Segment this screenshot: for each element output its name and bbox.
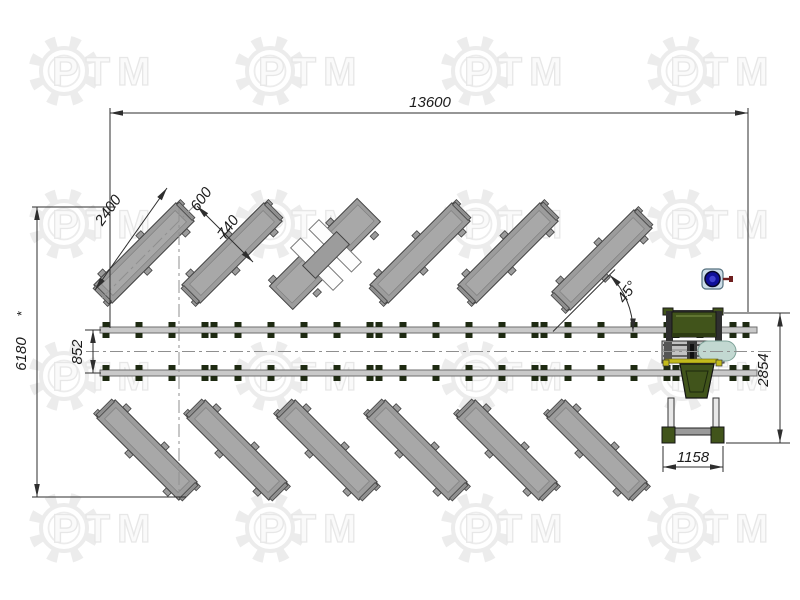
cutting-station bbox=[662, 269, 736, 443]
watermark-logo: PTM bbox=[234, 35, 363, 106]
watermark-logo: PTM bbox=[646, 492, 775, 563]
watermark-text: PTM bbox=[464, 507, 569, 551]
valve-sensor bbox=[702, 269, 733, 289]
layout-drawing-canvas: PTMPTMPTMPTMPTMPTMPTMPTMPTMPTMPTMPTMPTMP… bbox=[0, 0, 800, 600]
station-foot-right bbox=[711, 427, 724, 443]
watermark-logo: PTM bbox=[28, 492, 157, 563]
dim-overall-width: 6180 bbox=[13, 337, 30, 371]
watermark-logo: PTM bbox=[646, 188, 775, 259]
layout-drawing: PTMPTMPTMPTMPTMPTMPTMPTMPTMPTMPTMPTMPTMP… bbox=[0, 0, 800, 600]
watermark-text: PTM bbox=[52, 507, 157, 551]
station-guard-strip bbox=[665, 359, 718, 363]
dim-overall-length: 13600 bbox=[409, 94, 451, 111]
roller-conveyor bbox=[174, 195, 289, 310]
watermark-logo: PTM bbox=[234, 492, 363, 563]
diagonal-conveyors bbox=[86, 190, 659, 508]
watermark-text: PTM bbox=[670, 507, 775, 551]
dim-overall-width-note: * bbox=[14, 311, 29, 317]
watermark-text: PTM bbox=[464, 355, 569, 399]
watermark-logo: PTM bbox=[440, 35, 569, 106]
station-foot-left bbox=[662, 427, 675, 443]
watermark-text: PTM bbox=[464, 50, 569, 94]
dim-spacing-a: 600 bbox=[187, 184, 216, 215]
dim-track-gap: 852 bbox=[69, 339, 86, 365]
watermark-text: PTM bbox=[52, 50, 157, 94]
watermark-text: PTM bbox=[258, 507, 363, 551]
watermark-text: PTM bbox=[670, 50, 775, 94]
watermark-text: PTM bbox=[670, 203, 775, 247]
dim-machine-base: 1158 bbox=[677, 449, 710, 466]
dim-machine-height: 2854 bbox=[755, 353, 772, 387]
watermark-text: PTM bbox=[258, 50, 363, 94]
watermark-logo: PTM bbox=[646, 35, 775, 106]
watermark-logo: PTM bbox=[440, 492, 569, 563]
watermark-layer: PTMPTMPTMPTMPTMPTMPTMPTMPTMPTMPTMPTMPTMP… bbox=[28, 35, 775, 563]
watermark-logo: PTM bbox=[28, 35, 157, 106]
